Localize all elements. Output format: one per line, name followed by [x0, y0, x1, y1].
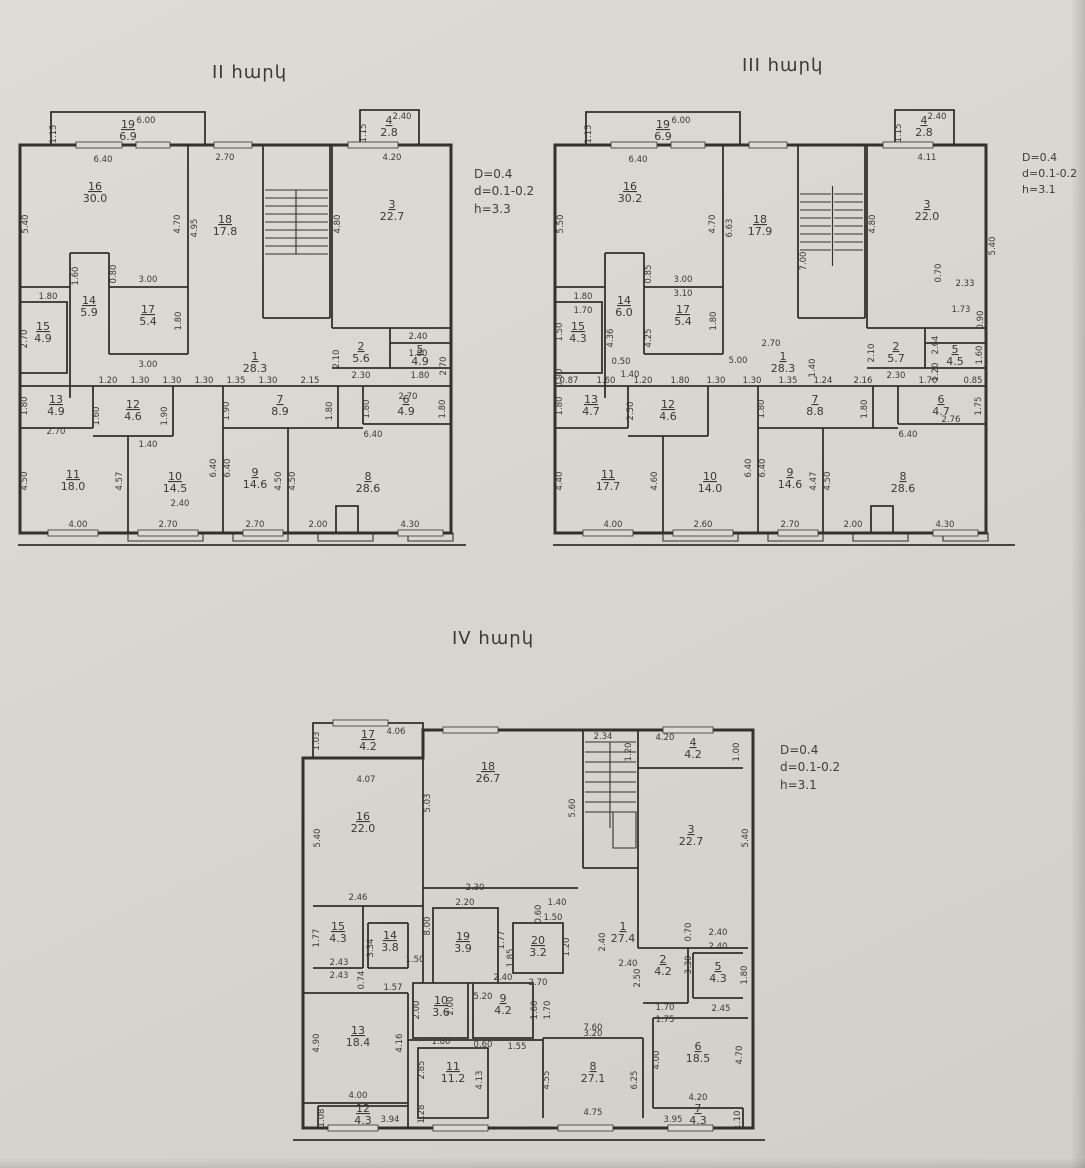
dim-label: 2.70 — [47, 427, 66, 437]
dim-label: 1.75 — [974, 397, 984, 416]
dim-label: 5.50 — [556, 215, 566, 234]
dim-label: 0.60 — [534, 905, 544, 924]
dim-label: 4.07 — [357, 775, 376, 785]
dim-label: 2.40 — [619, 959, 638, 969]
annotation-line: h=3.1 — [780, 777, 840, 794]
room-8-area: 27.1 — [581, 1072, 606, 1085]
dim-label: 7.00 — [799, 252, 809, 271]
dim-label: 4.50 — [823, 472, 833, 491]
dim-label: 1.50 — [555, 323, 565, 342]
dim-label: 4.20 — [689, 1093, 708, 1103]
dim-label: 1.35 — [779, 376, 798, 386]
floor2-title: II հարկ — [212, 62, 287, 83]
dim-label: 2.30 — [887, 371, 906, 381]
dim-label: 1.80 — [860, 400, 870, 419]
dim-label: 1.24 — [814, 376, 833, 386]
dim-label: 4.20 — [383, 153, 402, 163]
room-12-area: 4.6 — [659, 410, 677, 423]
dim-label: 2.70 — [762, 339, 781, 349]
dim-label: 6.40 — [899, 430, 918, 440]
dim-label: 1.80 — [20, 397, 30, 416]
room-15-area: 4.3 — [329, 932, 347, 945]
dim-label: 4.70 — [173, 215, 183, 234]
dim-label: 2.45 — [712, 1004, 731, 1014]
dim-label: 1.70 — [656, 1003, 675, 1013]
room-17-area: 5.4 — [139, 315, 157, 328]
room-6-area: 18.5 — [686, 1052, 711, 1065]
room-1-area: 27.4 — [611, 932, 636, 945]
dim-label: 1.03 — [312, 732, 322, 751]
dim-label: 1.60 — [71, 267, 81, 286]
dim-label: 1.20 — [624, 743, 634, 762]
dim-label: 5.40 — [21, 215, 31, 234]
room-18-area: 17.9 — [748, 225, 773, 238]
dim-label: 1.57 — [384, 983, 403, 993]
dim-label: 1.80 — [39, 292, 58, 302]
room-9-area: 4.2 — [494, 1004, 512, 1017]
room-19-area: 3.9 — [454, 942, 472, 955]
dim-label: 6.40 — [758, 459, 768, 478]
dim-label: 4.13 — [475, 1071, 485, 1090]
room-9-area: 14.6 — [778, 478, 803, 491]
dim-label: 2.43 — [330, 958, 349, 968]
dim-label: 1.90 — [160, 407, 170, 426]
dim-label: 4.20 — [656, 733, 675, 743]
room-1-area: 28.3 — [243, 362, 268, 375]
floor4-dimensions: 1.03 4.06 4.07 2.34 1.20 4.20 1.00 5.40 … — [312, 727, 751, 1129]
dim-label: 6.40 — [744, 459, 754, 478]
dim-label: 4.95 — [190, 219, 200, 238]
room-11-area: 18.0 — [61, 480, 86, 493]
room-14-area: 3.8 — [381, 941, 399, 954]
dim-label: 1.30 — [131, 376, 150, 386]
room-5-area: 4.3 — [709, 972, 727, 985]
dim-label: 1.15 — [359, 124, 369, 143]
dim-label: 3.10 — [674, 289, 693, 299]
dim-label: 1.35 — [227, 376, 246, 386]
room-17-area: 5.4 — [674, 315, 692, 328]
dim-label: 2.50 — [626, 402, 636, 421]
dim-label: 1.40 — [139, 440, 158, 450]
dim-label: 0.85 — [964, 376, 983, 386]
dim-label: 5.40 — [988, 237, 998, 256]
dim-label: 1.20 — [634, 376, 653, 386]
dim-label: 0.70 — [934, 264, 944, 283]
room-4-area: 2.8 — [915, 126, 933, 139]
dim-label: 1.50 — [406, 955, 425, 965]
dim-label: 2.40 — [709, 928, 728, 938]
dim-label: 5.03 — [423, 794, 433, 813]
dim-label: 1.80 — [438, 400, 448, 419]
dim-label: 5.40 — [313, 829, 323, 848]
dim-label: 4.57 — [115, 472, 125, 491]
dim-label: 4.55 — [542, 1071, 552, 1090]
dim-label: 4.47 — [809, 472, 819, 491]
dim-label: 2.70 — [246, 520, 265, 530]
room-15-area: 4.9 — [34, 332, 52, 345]
annotation-line: d=0.1-0.2 — [780, 759, 840, 776]
dim-label: 1.80 — [709, 312, 719, 331]
room-2-area: 5.6 — [352, 352, 370, 365]
annotation-line: D=0.4 — [780, 742, 840, 759]
dim-label: 1.60 — [530, 1001, 540, 1020]
room-14-area: 5.9 — [80, 306, 98, 319]
dim-label: 2.40 — [928, 112, 947, 122]
dim-label: 0.90 — [976, 311, 986, 330]
room-7-area: 4.3 — [689, 1114, 707, 1127]
room-10-area: 14.5 — [163, 482, 188, 495]
dim-label: 3.00 — [674, 275, 693, 285]
dim-label: 4.70 — [735, 1046, 745, 1065]
floor3-dimensions: 6.00 1.15 2.40 1.15 6.40 4.11 5.50 4.70 … — [555, 112, 998, 530]
dim-label: 5.60 — [568, 799, 578, 818]
dim-label: 3.00 — [139, 360, 158, 370]
dim-label: 2.15 — [301, 376, 320, 386]
dim-label: 4.40 — [555, 472, 565, 491]
dim-label: 1.30 — [163, 376, 182, 386]
dim-label: 2.00 — [446, 997, 456, 1016]
room-4-area: 4.2 — [684, 748, 702, 761]
dim-label: 4.50 — [274, 472, 284, 491]
room-5-area: 4.5 — [946, 355, 964, 368]
dim-label: 1.80 — [671, 376, 690, 386]
dim-label: 3.00 — [139, 275, 158, 285]
dim-label: 4.16 — [395, 1034, 405, 1053]
dim-label: 2.76 — [942, 415, 961, 425]
dim-label: 3.30 — [684, 956, 694, 975]
dim-label: 1.80 — [740, 966, 750, 985]
dim-label: 6.25 — [630, 1071, 640, 1090]
dim-label: 6.40 — [364, 430, 383, 440]
room-16-area: 30.0 — [83, 192, 108, 205]
dim-label: 2.40 — [409, 332, 428, 342]
window-marks — [583, 142, 978, 536]
dim-label: 4.80 — [868, 215, 878, 234]
dim-label: 5.00 — [729, 356, 748, 366]
dim-label: 1.90 — [222, 402, 232, 421]
dim-label: 1.30 — [743, 376, 762, 386]
dim-label: 0.80 — [109, 265, 119, 284]
dim-label: 2.85 — [417, 1061, 427, 1080]
dim-label: 1.15 — [584, 125, 594, 144]
dim-label: 1.80 — [409, 349, 428, 359]
dim-label: 0.74 — [357, 971, 367, 990]
dim-label: 1.80 — [325, 402, 335, 421]
room-3-area: 22.7 — [380, 210, 405, 223]
dim-label: 1.30 — [707, 376, 726, 386]
dim-label: 1.70 — [543, 1001, 553, 1020]
dim-label: 6.40 — [223, 459, 233, 478]
dim-label: 1.60 — [597, 376, 616, 386]
dim-label: 4.36 — [606, 329, 616, 348]
annotation-line: d=0.1-0.2 — [474, 183, 534, 200]
dim-label: 1.80 — [411, 371, 430, 381]
dim-label: 1.20 — [562, 938, 572, 957]
dim-label: 0.60 — [474, 1040, 493, 1050]
room-2-area: 4.2 — [654, 965, 672, 978]
dim-label: 4.30 — [936, 520, 955, 530]
room-4-area: 2.8 — [380, 126, 398, 139]
dim-label: 2.20 — [456, 898, 475, 908]
dim-label: 1.40 — [548, 898, 567, 908]
dim-label: 1.28 — [417, 1105, 427, 1124]
dim-label: 4.50 — [20, 472, 30, 491]
dim-label: 1.30 — [195, 376, 214, 386]
room-6-area: 4.9 — [397, 405, 415, 418]
dim-label: 1.80 — [574, 292, 593, 302]
annotation-line: h=3.3 — [474, 201, 534, 218]
dim-label: 2.50 — [633, 969, 643, 988]
dim-label: 0.87 — [560, 376, 579, 386]
dim-label: 1.77 — [312, 929, 322, 948]
room-17-area: 4.2 — [359, 740, 377, 753]
dim-label: 4.60 — [650, 472, 660, 491]
dim-label: 2.10 — [867, 344, 877, 363]
floor2-dimensions: 6.00 1.15 2.40 1.15 6.40 2.70 4.20 5.40 … — [20, 112, 449, 530]
dim-label: 1.75 — [656, 1015, 675, 1025]
dim-label: 2.40 — [494, 973, 513, 983]
dim-label: 2.40 — [709, 942, 728, 952]
dim-label: 2.40 — [598, 933, 608, 952]
floor4-room-labels: 174.2 44.2 1826.7 1622.0 322.7 193.9 203… — [329, 728, 727, 1127]
dim-label: 6.00 — [672, 116, 691, 126]
dim-label: 0.70 — [684, 923, 694, 942]
dim-label: 2.70 — [20, 330, 30, 349]
dim-label: 1.50 — [544, 913, 563, 923]
room-11-area: 11.2 — [441, 1072, 466, 1085]
dim-label: 3.34 — [366, 939, 376, 958]
dim-label: 1.60 — [975, 346, 985, 365]
room-10-area: 14.0 — [698, 482, 723, 495]
room-20-area: 3.2 — [529, 946, 547, 959]
dim-label: 1.55 — [508, 1042, 527, 1052]
dim-label: 6.63 — [725, 219, 735, 238]
dim-label: 2.10 — [332, 350, 342, 369]
dim-label: 1.80 — [174, 312, 184, 331]
dim-label: 2.70 — [159, 520, 178, 530]
room-8-area: 28.6 — [356, 482, 381, 495]
dim-label: 1.80 — [432, 1037, 451, 1047]
room-19-area: 6.9 — [119, 130, 137, 143]
dim-label: 4.75 — [584, 1108, 603, 1118]
room-3-area: 22.7 — [679, 835, 704, 848]
dim-label: 1.60 — [92, 407, 102, 426]
dim-label: 2.33 — [956, 279, 975, 289]
room-12-area: 4.3 — [354, 1114, 372, 1127]
dim-label: 1.73 — [952, 305, 971, 315]
dim-label: 4.70 — [708, 215, 718, 234]
dim-label: 1.20 — [99, 376, 118, 386]
dim-label: 2.70 — [216, 153, 235, 163]
dim-label: 4.00 — [349, 1091, 368, 1101]
room-13-area: 18.4 — [346, 1036, 371, 1049]
dim-label: 1.80 — [362, 400, 372, 419]
dim-label: 1.40 — [808, 359, 818, 378]
dim-label: 2.70 — [529, 978, 548, 988]
room-12-area: 4.6 — [124, 410, 142, 423]
dim-label: 4.30 — [401, 520, 420, 530]
dim-label: 1.80 — [757, 400, 767, 419]
dim-label: 5.20 — [474, 992, 493, 1002]
dim-label: 3.94 — [381, 1115, 400, 1125]
dim-label: 3.95 — [664, 1115, 683, 1125]
dim-label: 6.40 — [209, 459, 219, 478]
dim-label: 4.06 — [387, 727, 406, 737]
room-3-area: 22.0 — [915, 210, 940, 223]
dim-label: 1.80 — [555, 397, 565, 416]
room-18-area: 17.8 — [213, 225, 238, 238]
floor2-annotation: D=0.4 d=0.1-0.2 h=3.3 — [474, 166, 534, 218]
dim-label: 4.00 — [604, 520, 623, 530]
dim-label: 6.40 — [94, 155, 113, 165]
dim-label: 1.00 — [732, 743, 742, 762]
dim-label: 4.00 — [69, 520, 88, 530]
dim-label: 2.30 — [466, 883, 485, 893]
room-18-area: 26.7 — [476, 772, 501, 785]
dim-label: 4.90 — [312, 1034, 322, 1053]
room-13-area: 4.7 — [582, 405, 600, 418]
dim-label: 0.50 — [612, 357, 631, 367]
dim-label: 1.15 — [894, 124, 904, 143]
floor4-annotation: D=0.4 d=0.1-0.2 h=3.1 — [780, 742, 840, 794]
floor2-plan: 196.9 42.8 1630.0 1817.8 322.7 145.9 175… — [18, 106, 466, 558]
floor3-plan: 196.9 42.8 1630.2 1817.9 322.0 146.0 175… — [553, 106, 1015, 558]
dim-label: 2.40 — [393, 112, 412, 122]
floor3-stairs — [800, 186, 863, 266]
floor3-annotation: D=0.4 d=0.1-0.2 h=3.1 — [1022, 150, 1077, 198]
dim-label: 2.70 — [781, 520, 800, 530]
dim-label: 4.00 — [652, 1051, 662, 1070]
dim-label: 4.80 — [333, 215, 343, 234]
dim-label: 1.77 — [497, 931, 507, 950]
dim-label: 3.20 — [584, 1029, 603, 1039]
room-11-area: 17.7 — [596, 480, 621, 493]
dim-label: 4.50 — [288, 472, 298, 491]
room-15-area: 4.3 — [569, 332, 587, 345]
dim-label: 4.11 — [918, 153, 937, 163]
dim-label: 2.00 — [309, 520, 328, 530]
room-19-area: 6.9 — [654, 130, 672, 143]
dim-label: 2.34 — [594, 732, 613, 742]
dim-label: 1.10 — [733, 1111, 743, 1130]
dim-label: 4.25 — [644, 329, 654, 348]
floor3-title: III հարկ — [742, 55, 823, 76]
room-8-area: 28.6 — [891, 482, 916, 495]
dim-label: 2.30 — [352, 371, 371, 381]
room-13-area: 4.9 — [47, 405, 65, 418]
dim-label: 0.85 — [644, 265, 654, 284]
dim-label: 2.70 — [399, 392, 418, 402]
annotation-line: D=0.4 — [474, 166, 534, 183]
floor2-stairs — [265, 190, 328, 254]
dim-label: 1.70 — [919, 376, 938, 386]
scanned-floor-plan-page: II հարկ D=0.4 d=0.1-0.2 h=3.3 196.9 42.8… — [0, 0, 1085, 1168]
dim-label: 1.70 — [574, 306, 593, 316]
room-9-area: 14.6 — [243, 478, 268, 491]
room-14-area: 6.0 — [615, 306, 633, 319]
annotation-line: D=0.4 — [1022, 150, 1077, 166]
dim-label: 6.40 — [629, 155, 648, 165]
dim-label: 2.00 — [844, 520, 863, 530]
dim-label: 2.43 — [330, 971, 349, 981]
dim-label: 2.64 — [931, 336, 941, 355]
dim-label: 2.70 — [439, 357, 449, 376]
floor4-title: IV հարկ — [452, 628, 534, 649]
room-2-area: 5.7 — [887, 352, 905, 365]
window-marks — [48, 142, 443, 536]
room-7-area: 8.8 — [806, 405, 824, 418]
room-16-area: 30.2 — [618, 192, 643, 205]
dim-label: 2.46 — [349, 893, 368, 903]
dim-label: 2.60 — [694, 520, 713, 530]
dim-label: 6.00 — [137, 116, 156, 126]
room-7-area: 8.9 — [271, 405, 289, 418]
dim-label: 1.85 — [506, 949, 516, 968]
dim-label: 1.15 — [49, 125, 59, 144]
dim-label: 8.00 — [423, 917, 433, 936]
dim-label: 2.16 — [854, 376, 873, 386]
dim-label: 5.40 — [741, 829, 751, 848]
dim-label: 2.00 — [412, 1001, 422, 1020]
dim-label: 1.30 — [259, 376, 278, 386]
annotation-line: h=3.1 — [1022, 182, 1077, 198]
annotation-line: d=0.1-0.2 — [1022, 166, 1077, 182]
room-16-area: 22.0 — [351, 822, 376, 835]
dim-label: 1.08 — [317, 1109, 327, 1128]
dim-label: 2.40 — [171, 499, 190, 509]
room-1-area: 28.3 — [771, 362, 796, 375]
floor4-plan: 174.2 44.2 1826.7 1622.0 322.7 193.9 203… — [293, 708, 765, 1156]
